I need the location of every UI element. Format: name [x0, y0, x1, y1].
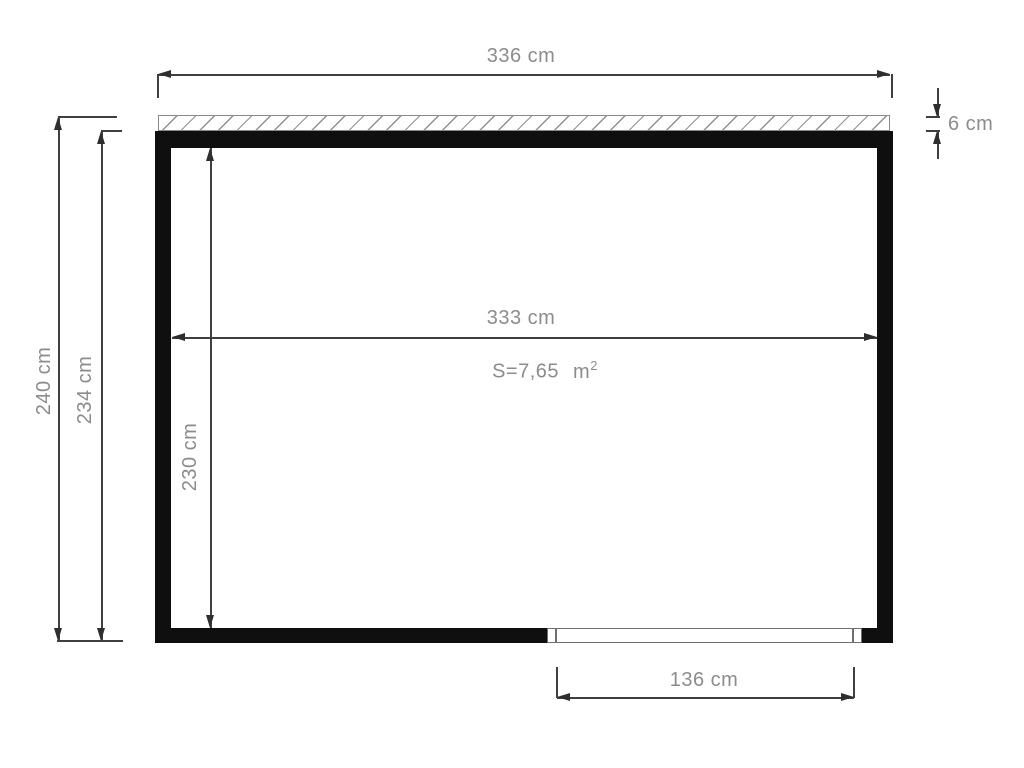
area-value: S=7,65 — [492, 361, 559, 383]
bottom-wall-left-segment — [155, 628, 547, 643]
dim-line — [158, 74, 890, 76]
floor-plan-canvas: 336 cm 6 cm 240 cm 234 cm 230 cm — [0, 0, 1024, 768]
inner-height-label: 230 cm — [178, 423, 202, 492]
extension-line — [891, 74, 893, 98]
dim-line — [101, 131, 103, 641]
door-leaf — [547, 628, 862, 643]
roof-overhang-hatch — [158, 115, 890, 131]
dim-line — [58, 117, 60, 641]
dim-line — [172, 337, 877, 339]
bottom-wall-right-segment — [862, 628, 893, 643]
arrow-right-icon — [841, 693, 854, 701]
area-label: S=7,65m2 — [445, 354, 645, 384]
extension-line — [57, 640, 123, 642]
arrow-down-icon — [206, 615, 214, 628]
wall-height-label: 234 cm — [73, 356, 97, 425]
arrow-right-icon — [864, 333, 877, 341]
door-width-label: 136 cm — [604, 668, 804, 692]
arrow-left-icon — [158, 70, 171, 78]
extension-line — [58, 116, 117, 118]
dim-line — [210, 148, 212, 628]
extension-tick — [926, 130, 940, 132]
area-unit: m — [573, 361, 590, 383]
top-wall — [155, 131, 893, 148]
arrow-up-icon — [933, 131, 941, 144]
arrow-up-icon — [54, 117, 62, 130]
right-wall — [877, 131, 893, 643]
inner-width-label: 333 cm — [421, 306, 621, 330]
roof-thickness-label: 6 cm — [948, 112, 993, 136]
extension-tick — [926, 116, 940, 118]
left-wall — [155, 131, 171, 643]
door-jamb-right — [852, 628, 854, 643]
door-jamb-left — [555, 628, 557, 643]
outer-width-label: 336 cm — [421, 44, 621, 68]
extension-line — [101, 130, 122, 132]
dim-line — [557, 697, 854, 699]
extension-line — [157, 74, 159, 98]
area-exponent: 2 — [590, 358, 598, 373]
arrow-left-icon — [172, 333, 185, 341]
outer-height-label: 240 cm — [32, 347, 56, 416]
arrow-right-icon — [877, 70, 890, 78]
arrow-up-icon — [97, 131, 105, 144]
arrow-left-icon — [557, 693, 570, 701]
arrow-down-icon — [97, 628, 105, 641]
arrow-up-icon — [206, 148, 214, 161]
